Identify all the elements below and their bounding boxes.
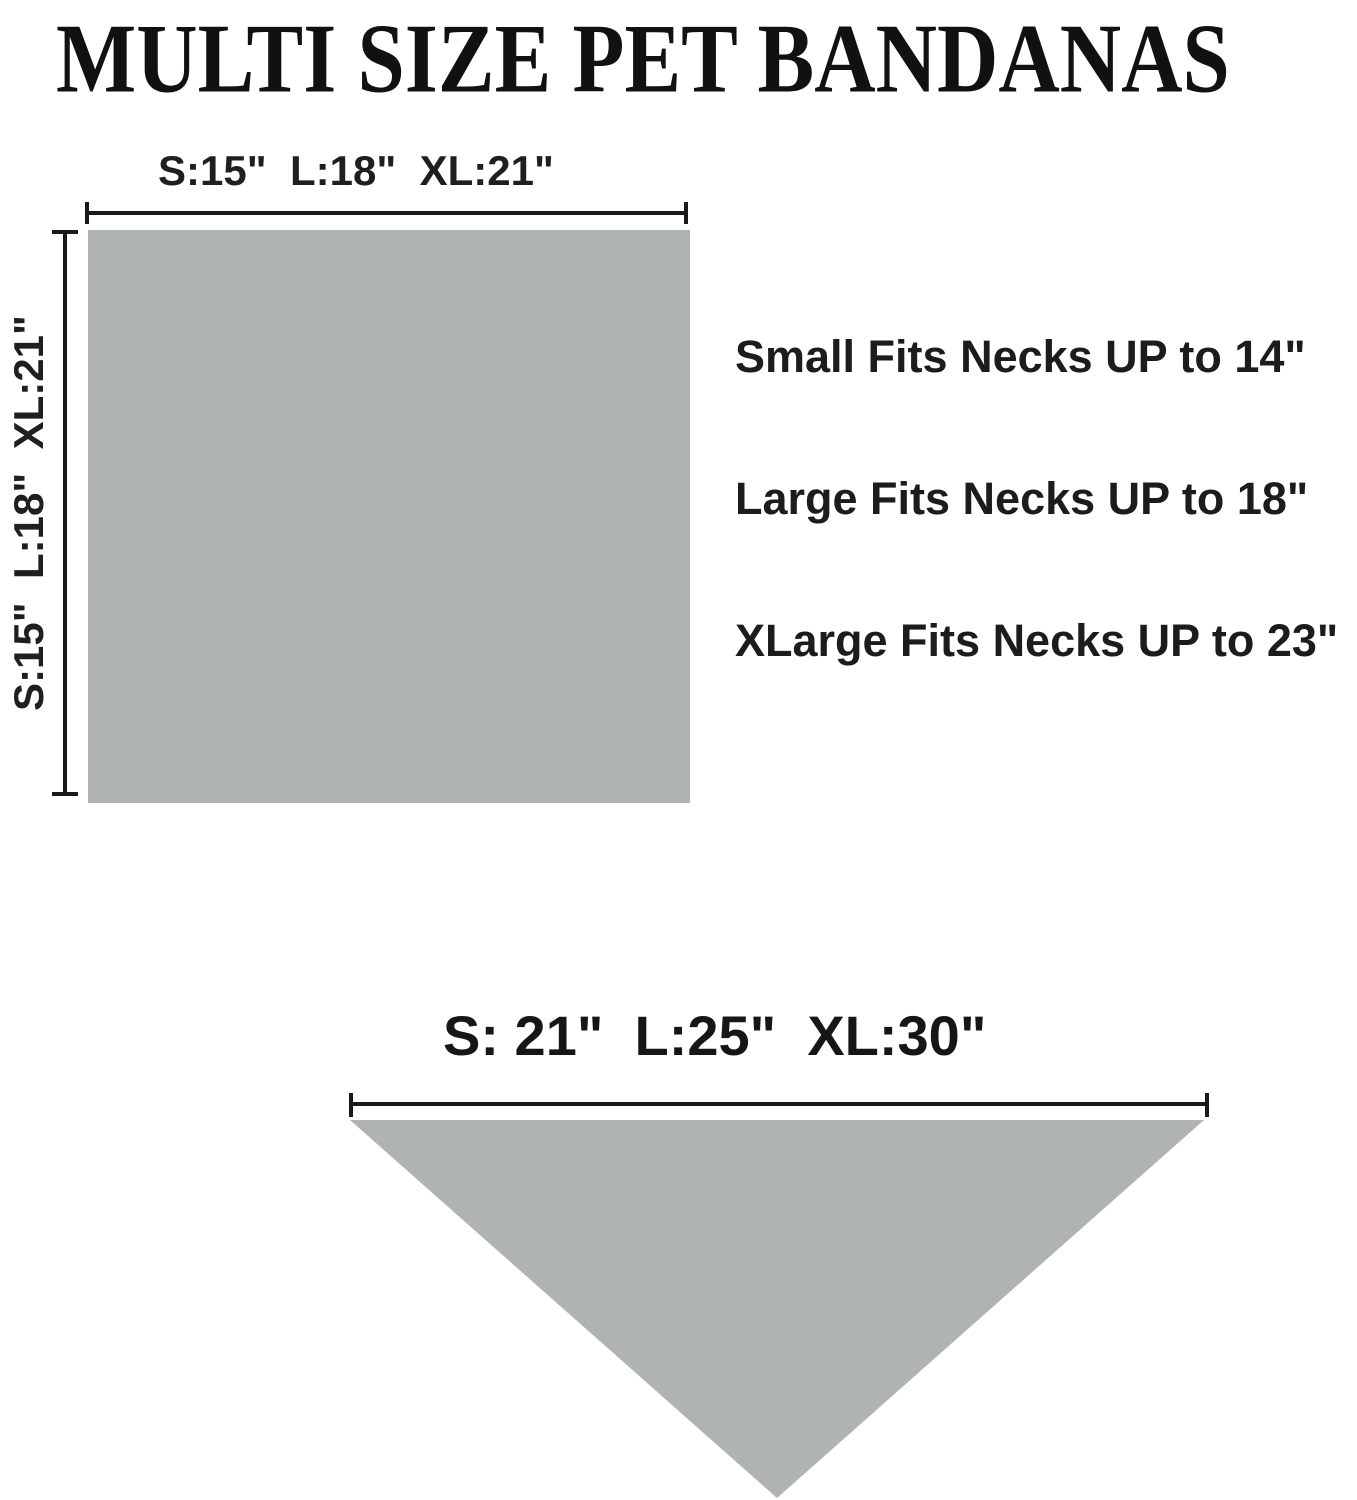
bandana-triangle-shape	[350, 1120, 1204, 1498]
dimension-tick-left	[85, 202, 89, 224]
dimension-tick-right	[1205, 1093, 1209, 1117]
triangle-width-label: S: 21" L:25" XL:30"	[443, 1002, 986, 1069]
dimension-tick-right	[684, 202, 688, 224]
size-chart-canvas: MULTI SIZE PET BANDANAS S:15" L:18" XL:2…	[0, 0, 1357, 1500]
triangle-polygon	[350, 1120, 1204, 1498]
bandana-square-shape	[88, 230, 690, 803]
fit-note-xlarge: XLarge Fits Necks UP to 23"	[735, 616, 1338, 666]
dimension-line-bar	[85, 211, 688, 215]
dimension-line-bar	[63, 230, 67, 796]
square-width-dimension-line	[85, 202, 688, 224]
square-height-label: S:15" L:18" XL:21"	[4, 223, 56, 803]
triangle-width-dimension-line	[349, 1093, 1209, 1117]
square-width-label: S:15" L:18" XL:21"	[158, 146, 554, 196]
page-title: MULTI SIZE PET BANDANAS	[56, 2, 1230, 116]
fit-note-small: Small Fits Necks UP to 14"	[735, 332, 1306, 382]
dimension-line-bar	[349, 1102, 1209, 1106]
dimension-tick-left	[349, 1093, 353, 1117]
fit-note-large: Large Fits Necks UP to 18"	[735, 474, 1308, 524]
